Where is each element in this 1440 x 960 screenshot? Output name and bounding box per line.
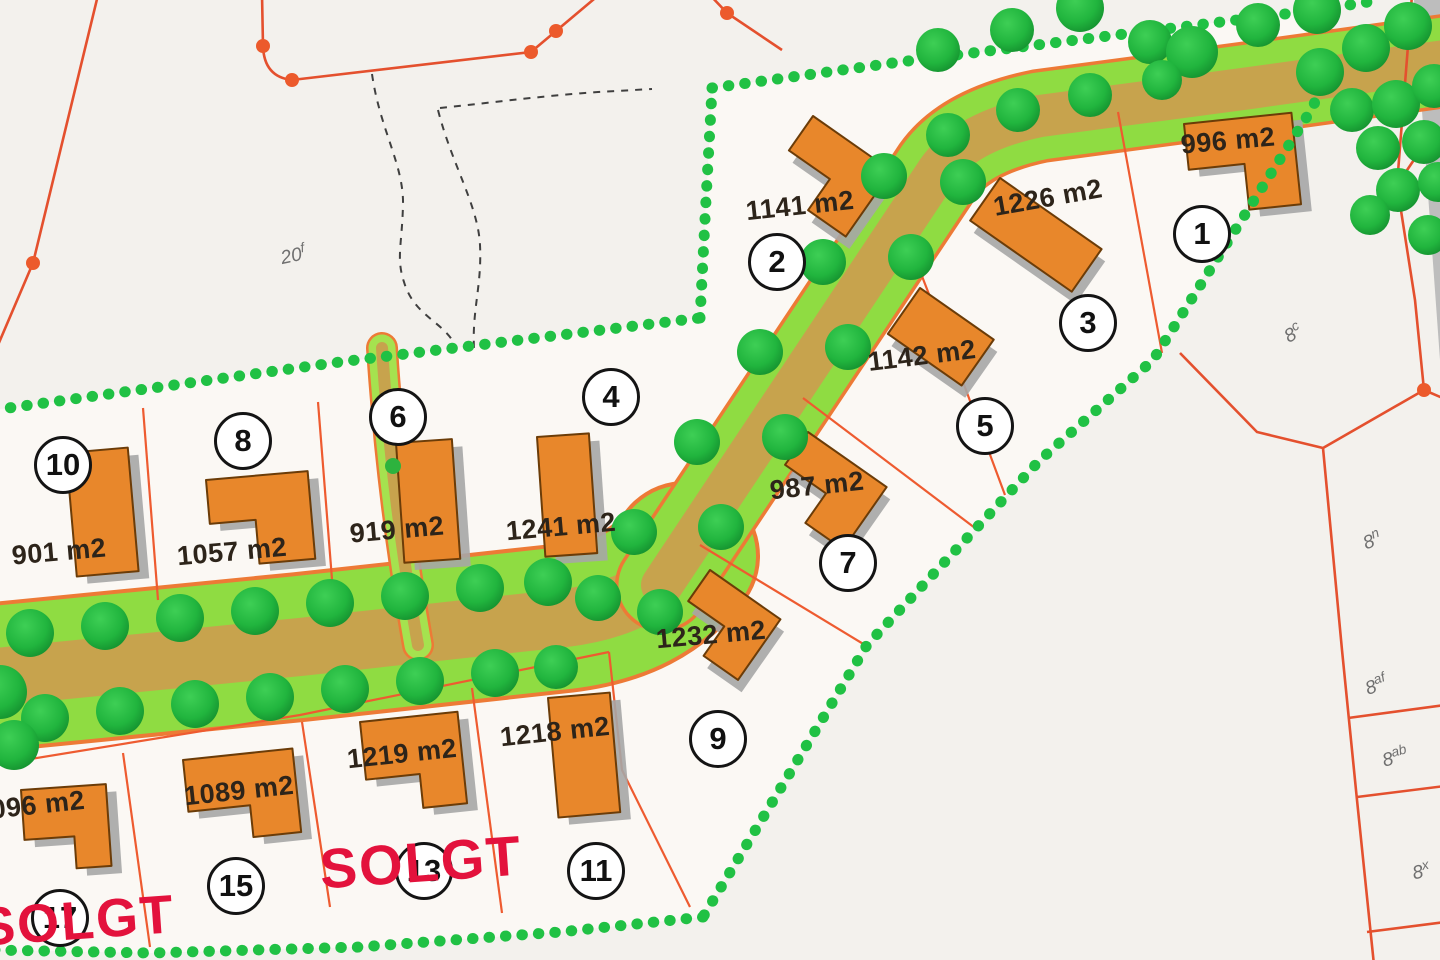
tree-icon <box>1356 126 1400 170</box>
house-lot-11[interactable] <box>548 692 631 826</box>
tree-icon <box>1408 215 1440 255</box>
lot-number-badge[interactable]: 6 <box>369 388 427 446</box>
tree-icon <box>471 649 519 697</box>
house-lot-4[interactable] <box>537 433 608 565</box>
lot-number-badge[interactable]: 2 <box>748 233 806 291</box>
tree-icon <box>1350 195 1390 235</box>
subdivision-map: 996 m2 1141 m2 1226 m2 1241 m2 1142 m2 9… <box>0 0 1440 960</box>
tree-icon <box>456 564 504 612</box>
lot-number-badge[interactable]: 10 <box>34 436 92 494</box>
tree-icon <box>1056 0 1104 32</box>
tree-icon <box>156 594 204 642</box>
lot-number-badge[interactable]: 1 <box>1173 205 1231 263</box>
tree-icon <box>888 234 934 280</box>
lot-number-badge[interactable]: 9 <box>689 710 747 768</box>
tree-icon <box>1330 88 1374 132</box>
tree-icon <box>1068 73 1112 117</box>
lot-number-badge[interactable]: 4 <box>582 368 640 426</box>
tree-icon <box>1402 120 1440 164</box>
tree-icon <box>96 687 144 735</box>
lot-number-badge[interactable]: 7 <box>819 534 877 592</box>
tree-icon <box>381 572 429 620</box>
tree-icon <box>524 558 572 606</box>
tree-icon <box>825 324 871 370</box>
tree-icon <box>1342 24 1390 72</box>
tree-icon <box>321 665 369 713</box>
tree-icon <box>737 329 783 375</box>
tree-icon <box>996 88 1040 132</box>
tree-icon <box>171 680 219 728</box>
tree-icon <box>575 575 621 621</box>
tree-icon <box>306 579 354 627</box>
tree-icon <box>762 414 808 460</box>
tree-icon <box>1384 2 1432 50</box>
tree-icon <box>990 8 1034 52</box>
tree-icon <box>1128 20 1172 64</box>
lot-number-badge[interactable]: 13 <box>395 842 453 900</box>
tree-icon <box>800 239 846 285</box>
tree-icon <box>534 645 578 689</box>
tree-icon <box>674 419 720 465</box>
lot-number-badge[interactable]: 5 <box>956 397 1014 455</box>
tree-icon <box>6 609 54 657</box>
tree-icon <box>861 153 907 199</box>
map-canvas <box>0 0 1440 960</box>
house-lot-6[interactable] <box>396 438 471 570</box>
tree-icon <box>1236 3 1280 47</box>
tree-icon <box>1418 162 1440 202</box>
lot-number-badge[interactable]: 17 <box>31 889 89 947</box>
lot-number-badge[interactable]: 11 <box>567 842 625 900</box>
tree-icon <box>396 657 444 705</box>
tree-icon <box>916 28 960 72</box>
tree-icon <box>698 504 744 550</box>
tree-icon <box>637 589 683 635</box>
lot-number-badge[interactable]: 3 <box>1059 294 1117 352</box>
tree-icon <box>611 509 657 555</box>
tree-icon <box>1142 60 1182 100</box>
tree-icon <box>246 673 294 721</box>
tree-icon <box>81 602 129 650</box>
tree-icon <box>1296 48 1344 96</box>
lot-number-badge[interactable]: 8 <box>214 412 272 470</box>
small-tree-dot-lot-6 <box>385 458 401 474</box>
lot-number-badge[interactable]: 15 <box>207 857 265 915</box>
tree-icon <box>231 587 279 635</box>
dashed-track <box>372 74 652 348</box>
tree-icon <box>940 159 986 205</box>
tree-icon <box>926 113 970 157</box>
